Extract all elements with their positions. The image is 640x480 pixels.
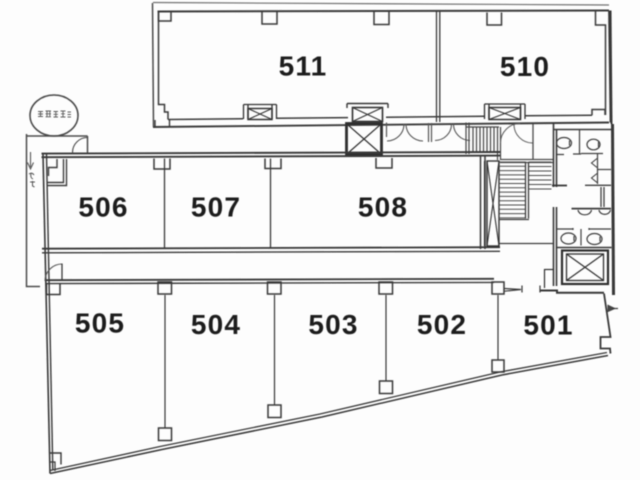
svg-text:502: 502	[417, 309, 467, 340]
svg-text:508: 508	[358, 192, 408, 223]
svg-text:503: 503	[308, 309, 358, 340]
svg-text:504: 504	[191, 309, 241, 340]
svg-text:501: 501	[523, 310, 573, 341]
svg-text:506: 506	[78, 192, 128, 223]
svg-text:510: 510	[500, 51, 550, 82]
svg-text:511: 511	[279, 51, 328, 82]
svg-text:507: 507	[191, 192, 241, 223]
svg-text:505: 505	[75, 308, 125, 339]
